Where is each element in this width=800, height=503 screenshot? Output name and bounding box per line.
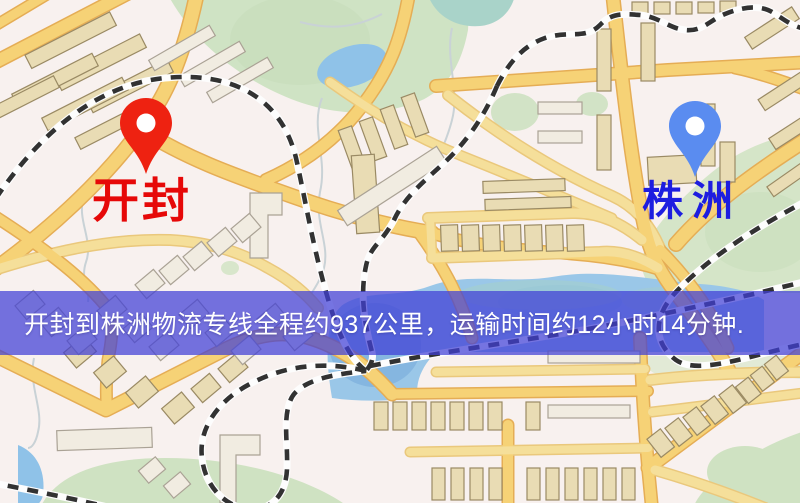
route-info-banner: 开封到株洲物流专线全程约937公里，运输时间约12小时14分钟. (0, 291, 800, 355)
route-info-text: 开封到株洲物流专线全程约937公里，运输时间约12小时14分钟. (24, 305, 744, 341)
destination-city-label: 株洲 (642, 181, 742, 222)
logistics-route-map: 开封 株洲 开封到株洲物流专线全程约937公里，运输时间约12小时14分钟. (0, 0, 800, 503)
origin-city-label: 开封 (92, 177, 192, 224)
map-canvas[interactable] (0, 0, 800, 503)
